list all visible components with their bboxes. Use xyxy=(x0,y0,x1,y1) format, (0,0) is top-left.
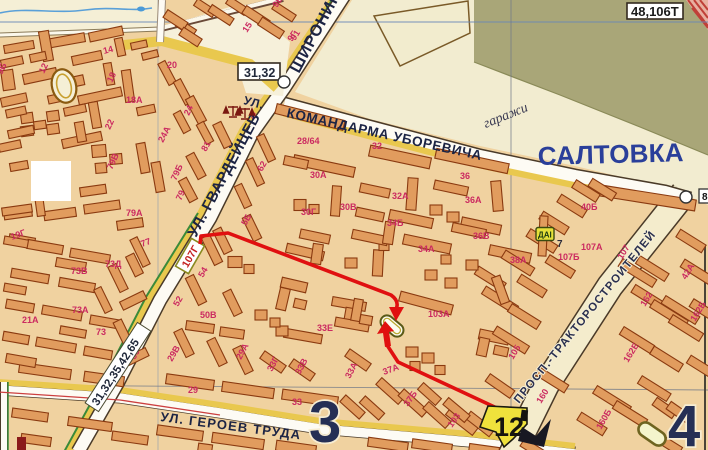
svg-text:18А: 18А xyxy=(126,95,143,105)
svg-text:20: 20 xyxy=(167,60,177,70)
svg-text:34Б: 34Б xyxy=(387,218,404,228)
svg-text:7: 7 xyxy=(557,239,563,250)
svg-text:4: 4 xyxy=(668,394,700,450)
svg-text:79А: 79А xyxy=(126,208,143,218)
svg-text:29: 29 xyxy=(188,385,198,395)
svg-text:32: 32 xyxy=(372,141,382,151)
svg-text:33: 33 xyxy=(292,397,302,407)
svg-text:36: 36 xyxy=(460,171,470,181)
svg-text:40Б: 40Б xyxy=(581,202,598,212)
svg-text:31,32: 31,32 xyxy=(244,66,275,80)
svg-text:103А: 103А xyxy=(428,309,450,319)
svg-text:73В: 73В xyxy=(71,266,88,276)
svg-text:30В: 30В xyxy=(340,202,357,212)
svg-text:32А: 32А xyxy=(392,191,409,201)
svg-text:28/64: 28/64 xyxy=(297,136,320,146)
svg-text:3: 3 xyxy=(309,390,341,450)
svg-text:73: 73 xyxy=(96,327,106,337)
svg-text:21А: 21А xyxy=(22,315,39,325)
svg-text:107Б: 107Б xyxy=(558,252,580,262)
svg-text:36В: 36В xyxy=(473,231,490,241)
svg-text:30А: 30А xyxy=(310,170,327,180)
svg-text:ДАІ: ДАІ xyxy=(538,231,552,240)
svg-text:48,106Т: 48,106Т xyxy=(631,4,679,19)
svg-text:30Г: 30Г xyxy=(301,207,316,217)
svg-text:73Д: 73Д xyxy=(105,259,122,269)
svg-text:36А: 36А xyxy=(465,195,482,205)
svg-text:8: 8 xyxy=(702,192,708,203)
svg-text:73А: 73А xyxy=(72,305,89,315)
svg-text:33Е: 33Е xyxy=(317,323,333,333)
svg-text:САЛТОВКА: САЛТОВКА xyxy=(537,137,684,171)
svg-text:107А: 107А xyxy=(581,242,603,252)
svg-text:34А: 34А xyxy=(418,244,435,254)
svg-text:38А: 38А xyxy=(510,255,527,265)
svg-text:50В: 50В xyxy=(200,310,217,320)
